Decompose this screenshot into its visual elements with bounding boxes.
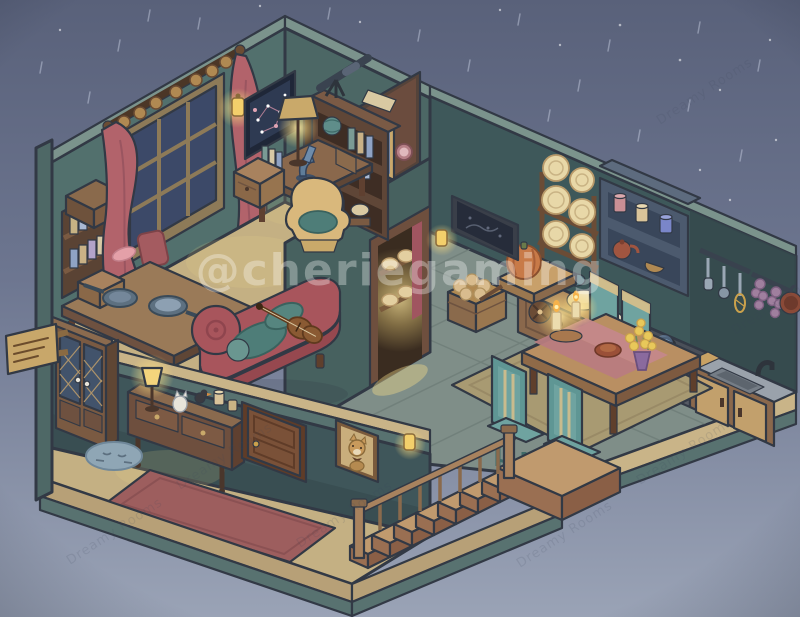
scene-illustration: @cheriegaming Dreamy Rooms Dreamy Rooms …	[0, 0, 800, 617]
watermark-handle: @cheriegaming	[196, 245, 605, 296]
screenshot-stage: @cheriegaming Dreamy Rooms Dreamy Rooms …	[0, 0, 800, 617]
